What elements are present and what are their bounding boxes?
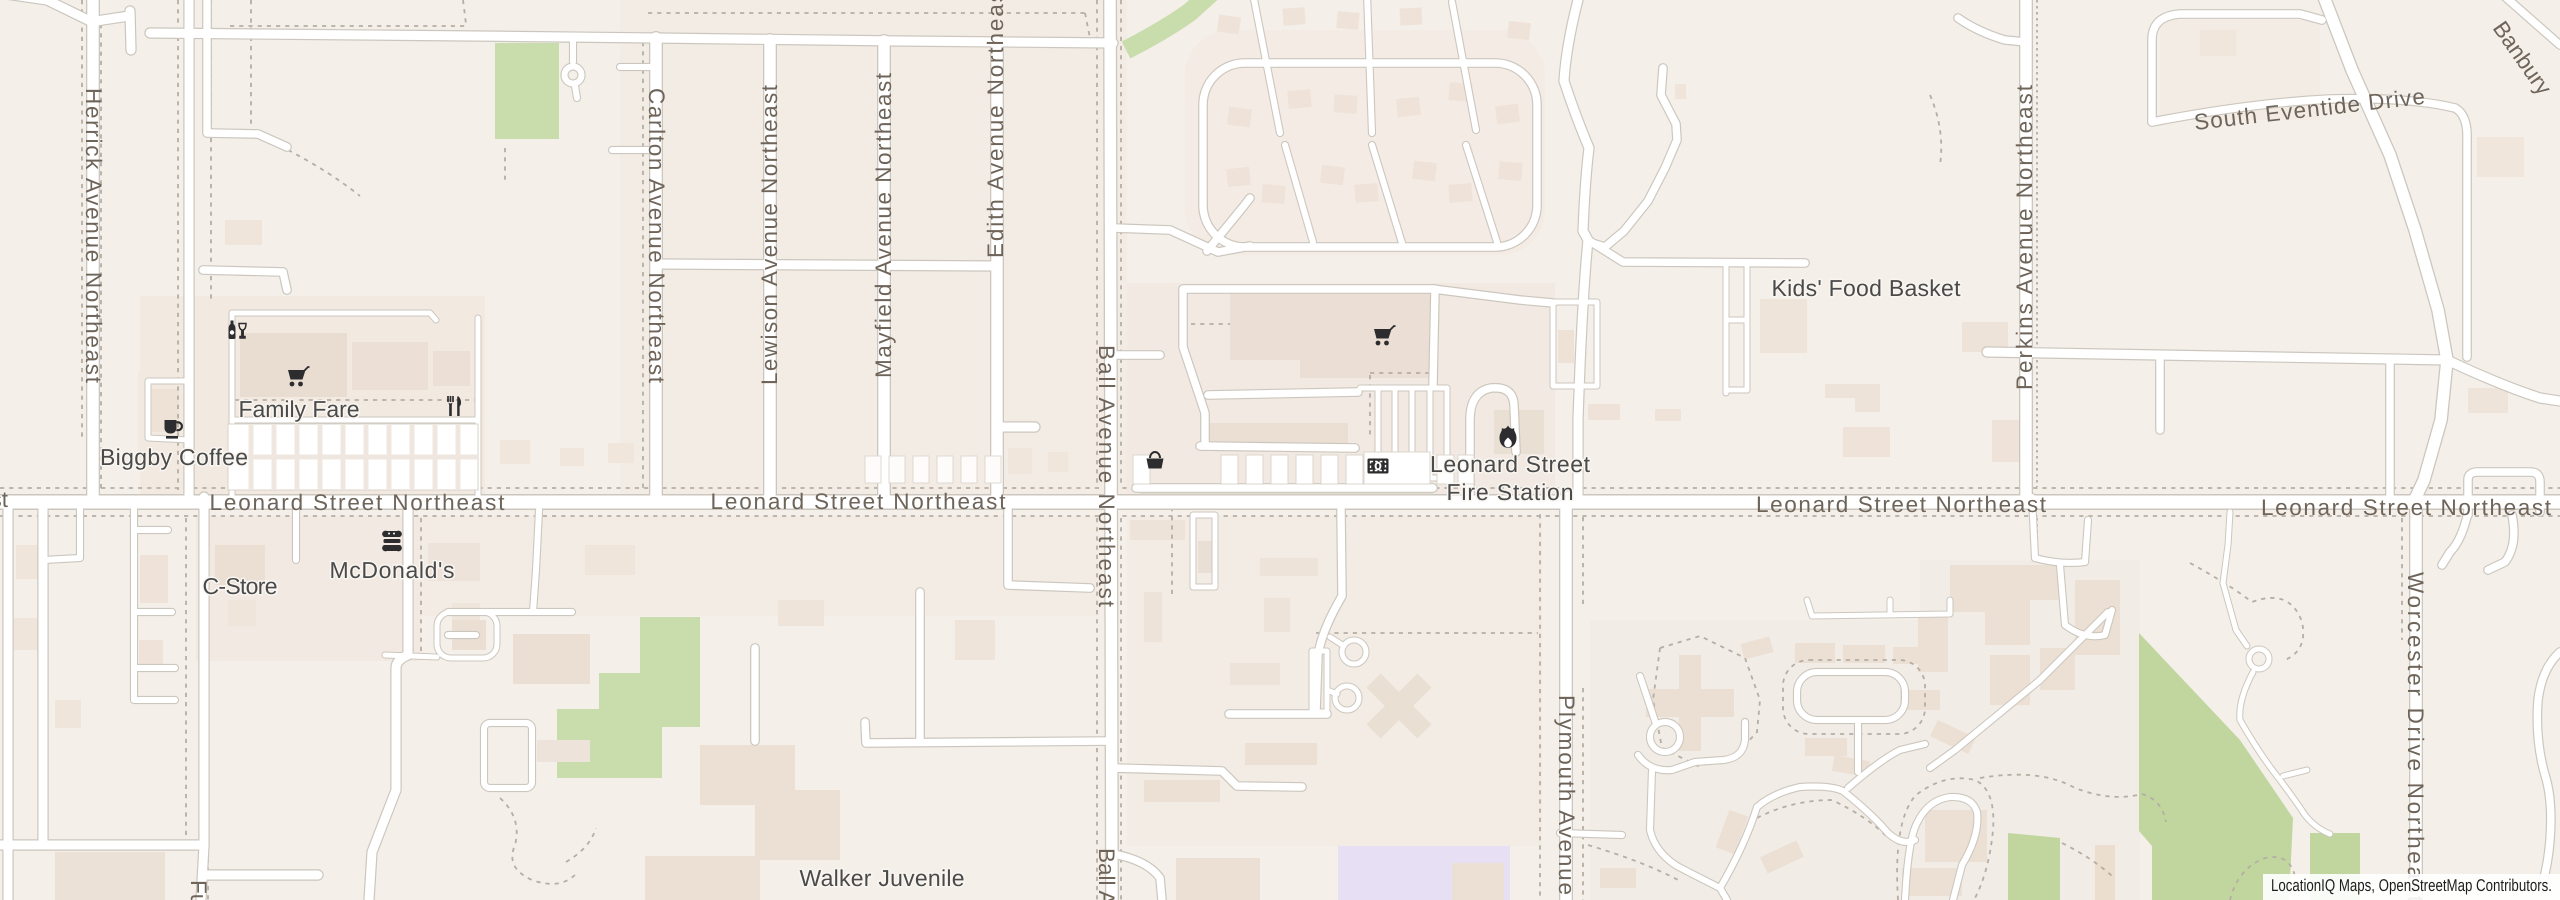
- svg-text:Walker Juvenile: Walker Juvenile: [800, 865, 965, 891]
- svg-text:Leonard Street Northeast: Leonard Street Northeast: [0, 487, 9, 512]
- svg-text:Leonard Street Northeast: Leonard Street Northeast: [2261, 495, 2552, 520]
- svg-text:McDonald's: McDonald's: [330, 557, 455, 583]
- svg-text:Fire Station: Fire Station: [1447, 479, 1574, 505]
- svg-text:Family Fare: Family Fare: [239, 396, 360, 422]
- svg-text:LocationIQ Maps, OpenStreetMap: LocationIQ Maps, OpenStreetMap Contribut…: [2271, 876, 2552, 895]
- svg-text:Kids' Food Basket: Kids' Food Basket: [1772, 275, 1962, 301]
- svg-text:Ball Avenue: Ball Avenue: [1094, 848, 1119, 900]
- svg-text:Leonard Street Northeast: Leonard Street Northeast: [210, 490, 506, 515]
- svg-text:Ball Avenue Northeast: Ball Avenue Northeast: [1094, 345, 1119, 608]
- svg-text:Carlton Avenue Northeast: Carlton Avenue Northeast: [644, 88, 669, 384]
- svg-text:Fuller Avenue: Fuller Avenue: [186, 880, 211, 900]
- svg-text:Worcester Drive Northeast: Worcester Drive Northeast: [2403, 572, 2428, 900]
- svg-text:Edith Avenue Northeast: Edith Avenue Northeast: [983, 0, 1008, 258]
- svg-text:Herrick Avenue Northeast: Herrick Avenue Northeast: [81, 88, 106, 384]
- svg-text:Leonard Street Northeast: Leonard Street Northeast: [711, 489, 1007, 514]
- svg-text:Biggby Coffee: Biggby Coffee: [100, 444, 248, 470]
- svg-text:C-Store: C-Store: [203, 573, 278, 599]
- svg-text:Leonard Street Northeast: Leonard Street Northeast: [1756, 492, 2047, 517]
- svg-text:Leonard Street: Leonard Street: [1430, 451, 1591, 477]
- svg-text:Plymouth Avenue: Plymouth Avenue: [1554, 695, 1579, 895]
- svg-text:Lewison Avenue Northeast: Lewison Avenue Northeast: [757, 84, 782, 385]
